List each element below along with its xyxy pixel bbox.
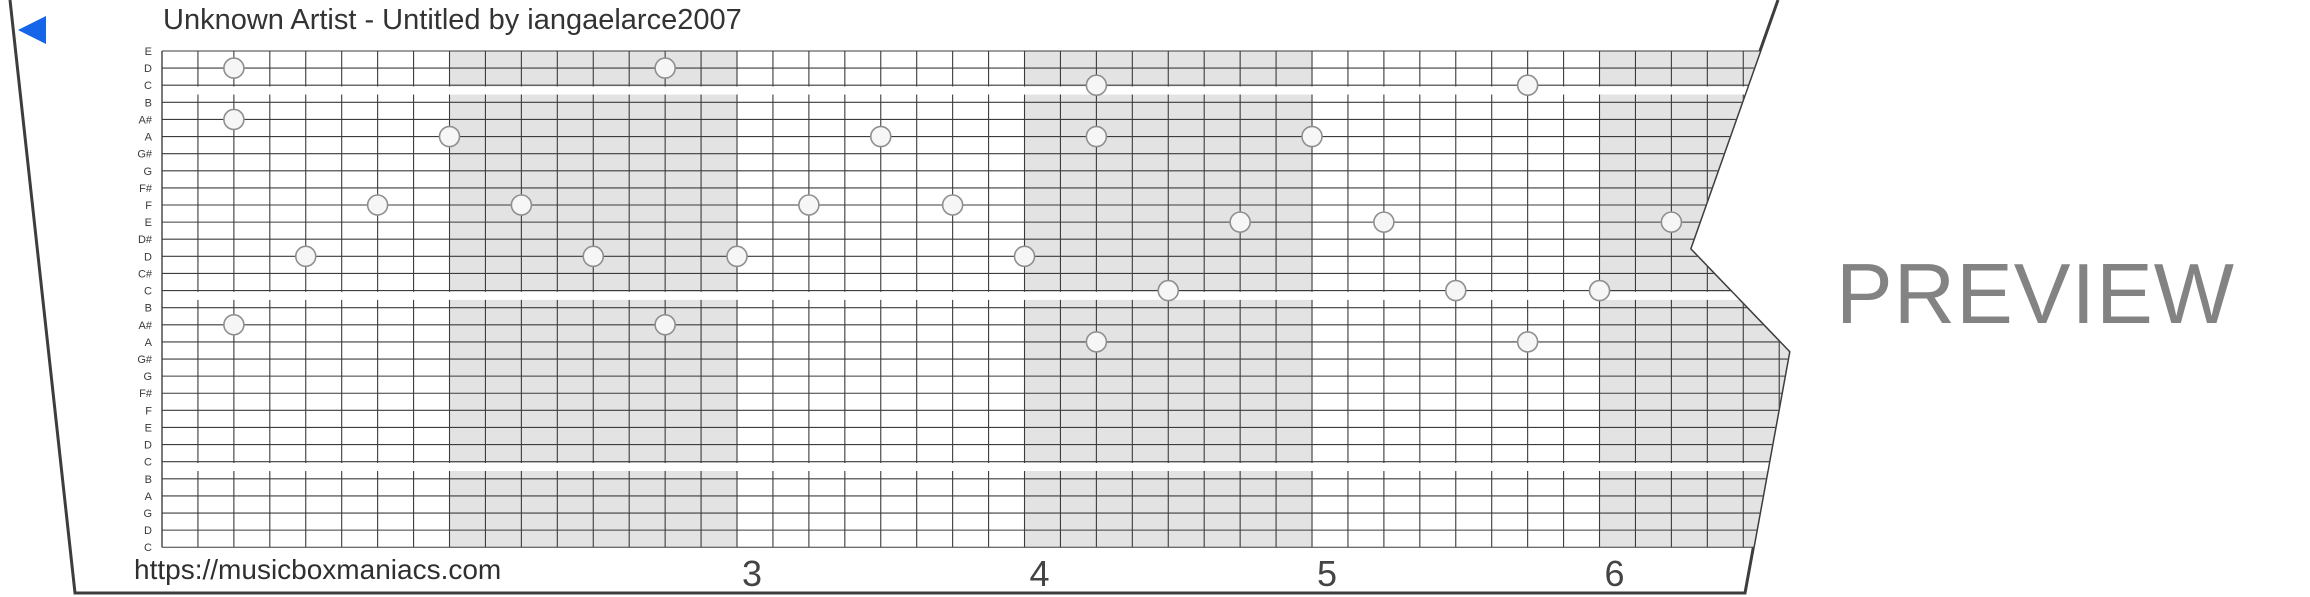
note-row-label: F# bbox=[139, 388, 153, 400]
note-circle bbox=[1158, 281, 1178, 301]
song-title: Unknown Artist - Untitled by iangaelarce… bbox=[163, 4, 742, 37]
note-row-label: C bbox=[144, 286, 152, 298]
note-row-label: B bbox=[145, 97, 152, 109]
note-row-label: A bbox=[145, 132, 153, 144]
note-circle bbox=[368, 195, 388, 215]
note-circle bbox=[1661, 212, 1681, 232]
octave-gap bbox=[163, 292, 1816, 300]
note-circle bbox=[871, 127, 891, 147]
note-row-label: F bbox=[145, 200, 152, 212]
note-circle bbox=[511, 195, 531, 215]
note-row-label: D bbox=[144, 440, 152, 452]
note-row-label: E bbox=[145, 46, 152, 58]
music-strip-preview: EDCBA#AG#GF#FED#DC#CBA#AG#GF#FEDCBAGDC 3… bbox=[0, 0, 2310, 597]
note-circle bbox=[1015, 246, 1035, 266]
note-circle bbox=[224, 315, 244, 335]
octave-gap bbox=[163, 463, 1816, 471]
note-circle bbox=[1518, 332, 1538, 352]
note-circle bbox=[1590, 281, 1610, 301]
note-circle bbox=[224, 58, 244, 78]
note-row-label: D bbox=[144, 525, 152, 537]
note-circle bbox=[224, 109, 244, 129]
note-row-label: D bbox=[144, 63, 152, 75]
note-row-label: C bbox=[144, 542, 152, 554]
note-row-label: C bbox=[144, 80, 152, 92]
note-circle bbox=[1086, 332, 1106, 352]
note-row-label: C bbox=[144, 457, 152, 469]
note-row-label: D# bbox=[138, 234, 153, 246]
note-circle bbox=[583, 246, 603, 266]
measure-number: 5 bbox=[1317, 553, 1337, 594]
note-circle bbox=[1086, 75, 1106, 95]
note-row-label: A# bbox=[139, 114, 153, 126]
octave-gap bbox=[163, 87, 1816, 95]
note-row-label: F# bbox=[139, 183, 153, 195]
note-circle bbox=[1518, 75, 1538, 95]
note-row-label: E bbox=[145, 217, 152, 229]
note-row-labels: EDCBA#AG#GF#FED#DC#CBA#AG#GF#FEDCBAGDC bbox=[137, 46, 153, 554]
note-row-label: G# bbox=[137, 354, 153, 366]
note-row-label: G bbox=[143, 508, 152, 520]
note-row-label: G# bbox=[137, 149, 153, 161]
note-row-label: E bbox=[145, 422, 152, 434]
note-circle bbox=[1302, 127, 1322, 147]
note-circle bbox=[1230, 212, 1250, 232]
note-circle bbox=[1374, 212, 1394, 232]
note-grid bbox=[162, 51, 1887, 547]
note-row-label: A# bbox=[139, 320, 153, 332]
play-icon bbox=[18, 16, 46, 44]
note-row-label: A bbox=[145, 337, 153, 349]
measure-numbers: 3456 bbox=[742, 553, 1625, 594]
note-circle bbox=[943, 195, 963, 215]
note-row-label: D bbox=[144, 251, 152, 263]
note-circle bbox=[440, 127, 460, 147]
play-button[interactable] bbox=[18, 15, 48, 45]
note-row-label: B bbox=[145, 303, 152, 315]
note-circle bbox=[655, 315, 675, 335]
note-circle bbox=[296, 246, 316, 266]
note-circle bbox=[799, 195, 819, 215]
note-row-label: B bbox=[145, 474, 152, 486]
note-circle bbox=[655, 58, 675, 78]
note-row-label: G bbox=[143, 166, 152, 178]
note-row-label: G bbox=[143, 371, 152, 383]
measure-number: 4 bbox=[1029, 553, 1049, 594]
note-row-label: C# bbox=[138, 268, 153, 280]
note-circle bbox=[1086, 127, 1106, 147]
site-url: https://musicboxmaniacs.com bbox=[134, 554, 501, 586]
note-row-label: F bbox=[145, 405, 152, 417]
preview-watermark: PREVIEW bbox=[1836, 252, 2235, 337]
note-circle bbox=[1446, 281, 1466, 301]
note-circle bbox=[727, 246, 747, 266]
measure-number: 3 bbox=[742, 553, 762, 594]
measure-number: 6 bbox=[1605, 553, 1625, 594]
note-row-label: A bbox=[145, 491, 153, 503]
